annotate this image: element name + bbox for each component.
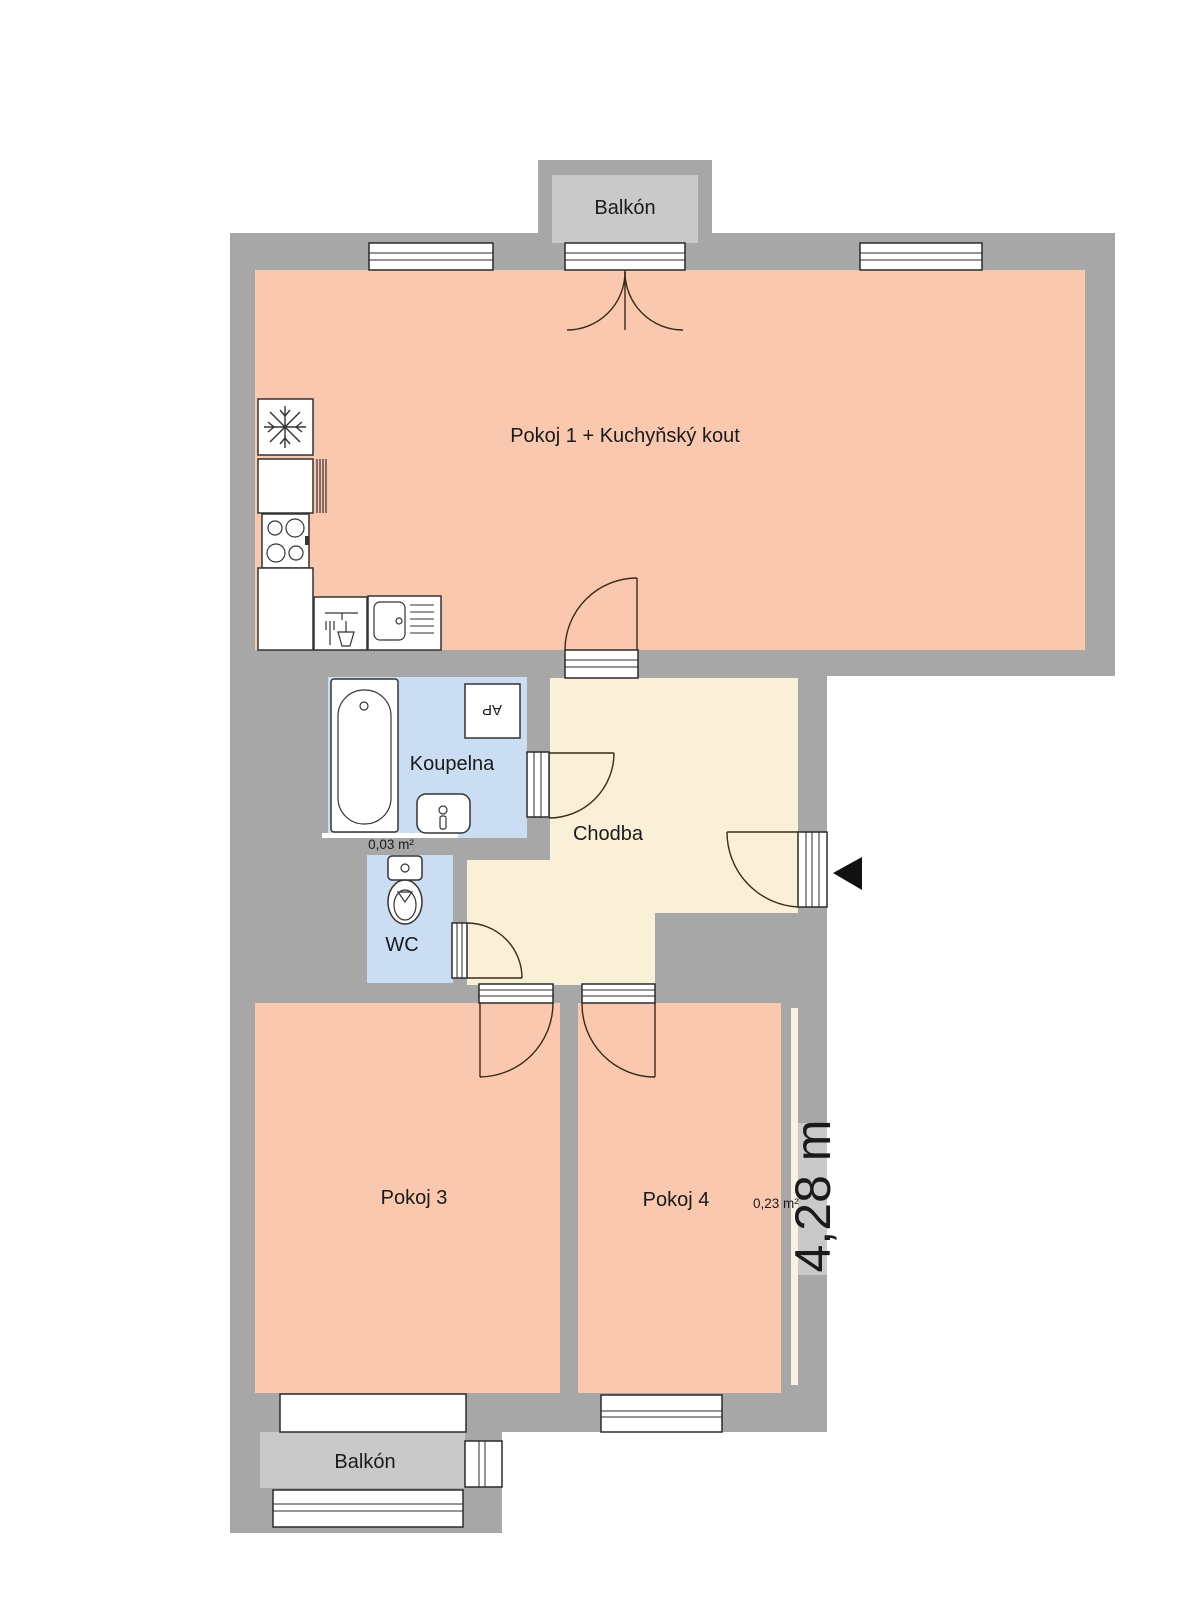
balcony-bottom-side-box [465,1441,502,1487]
dimension-annotation: 4,28 m [785,1120,841,1273]
balcony-top-door-jamb [565,243,685,270]
bathtub [331,679,398,832]
window-pokoj4-bottom [601,1395,722,1432]
bath-area-annotation: 0,03 m² [368,837,414,852]
kitchen-sink [368,596,441,650]
koupelna-label: Koupelna [410,753,495,775]
snowflake-icon [264,406,306,448]
jamb-entrance [798,832,827,907]
balcony-bottom-door [280,1394,466,1432]
washbasin [417,794,470,833]
dishwasher [314,597,367,650]
jamb-pokoj3 [479,984,553,1003]
jamb-koupelna [527,752,549,817]
wc-label: WC [385,934,418,956]
jamb-wc [452,923,467,978]
stove [262,514,309,568]
balcony-bottom-label: Balkón [334,1451,395,1473]
balcony-bottom-railing [273,1490,463,1527]
pokoj4-label: Pokoj 4 [643,1189,710,1211]
kitchen-cabinet [258,568,313,650]
room-pokoj1-kitchen [255,270,1085,650]
floor-plan-canvas: Balkón Pokoj 1 + Kuchyňský kout Koupelna… [0,0,1193,1600]
window-top-left [369,243,493,270]
toilet [388,856,422,924]
jamb-pokoj1 [565,650,638,678]
window-top-right [860,243,982,270]
pokoj1-label: Pokoj 1 + Kuchyňský kout [510,425,740,447]
washer-label: AP [482,701,502,718]
floor-plan: Balkón Pokoj 1 + Kuchyňský kout Koupelna… [0,0,1193,1600]
chodba-label: Chodba [573,823,644,845]
pokoj3-label: Pokoj 3 [381,1187,448,1209]
jamb-pokoj4 [582,984,655,1003]
fridge [258,399,313,455]
balcony-top-label: Balkón [594,197,655,219]
